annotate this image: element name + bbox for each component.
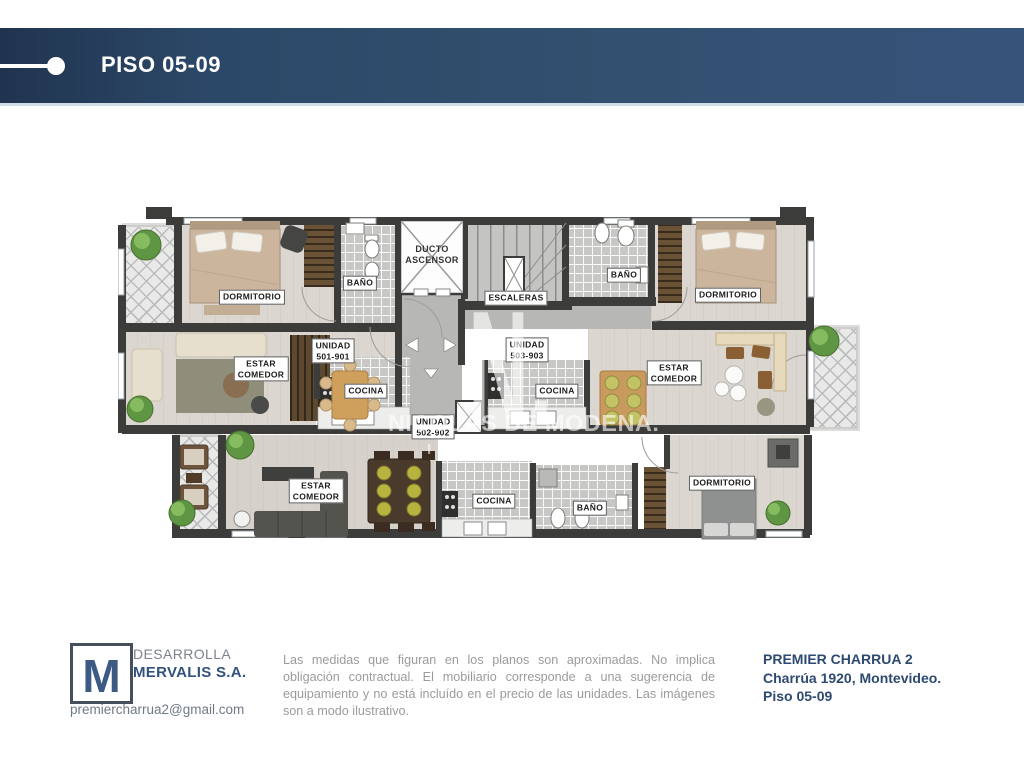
developer-logo-monogram: M — [82, 653, 120, 699]
unit-label-501: UNIDAD 501-901 — [312, 338, 355, 363]
room-label-cocina-501: COCINA — [344, 384, 387, 399]
header-bar: PISO 05-09 — [0, 28, 1024, 106]
room-label-cocina-503: COCINA — [535, 384, 578, 399]
project-info: PREMIER CHARRUA 2 Charrúa 1920, Montevid… — [763, 650, 941, 706]
room-floor-balcony-502 — [176, 435, 220, 535]
developer-logo: M — [70, 643, 133, 704]
developer-name: MERVALIS S.A. — [133, 664, 246, 681]
unit-label-502: UNIDAD 502-902 — [412, 414, 455, 439]
room-label-bano-503: BAÑO — [607, 268, 641, 283]
project-address: Charrúa 1920, Montevideo. — [763, 669, 941, 688]
project-name: PREMIER CHARRUA 2 — [763, 650, 941, 669]
legal-disclaimer: Las medidas que figuran en los planos so… — [283, 652, 715, 720]
room-floor-bano-501 — [336, 219, 398, 325]
room-floor-hall-503 — [464, 303, 652, 329]
room-label-dormitorio-502: DORMITORIO — [689, 476, 755, 491]
page-title: PISO 05-09 — [101, 52, 221, 78]
room-label-estar-502: ESTAR COMEDOR — [289, 478, 344, 503]
developer-label: DESARROLLA — [133, 646, 231, 662]
room-label-cocina-502: COCINA — [472, 494, 515, 509]
room-label-bano-501: BAÑO — [343, 276, 377, 291]
wardrobe-501 — [304, 221, 336, 287]
floor-plan: DORMITORIO BAÑO DUCTO ASCENSOR ESCALERAS… — [118, 205, 863, 547]
room-label-ducto-ascensor: DUCTO ASCENSOR — [402, 243, 461, 268]
room-label-estar-501: ESTAR COMEDOR — [234, 356, 289, 381]
header-accent-dot — [47, 57, 65, 75]
project-floor: Piso 05-09 — [763, 687, 941, 706]
header-accent-line — [0, 64, 50, 68]
room-label-dormitorio-503: DORMITORIO — [695, 288, 761, 303]
room-label-bano-502: BAÑO — [573, 501, 607, 516]
developer-email: premiercharrua2@gmail.com — [70, 702, 244, 717]
wardrobe-503 — [658, 223, 682, 303]
unit-label-503: UNIDAD 503-903 — [506, 337, 549, 362]
room-label-escaleras: ESCALERAS — [484, 291, 547, 306]
room-floor-balcony-right — [810, 327, 858, 429]
room-label-dormitorio-501: DORMITORIO — [219, 290, 285, 305]
wardrobe-502 — [644, 467, 666, 537]
room-floor-bano-503 — [565, 219, 651, 301]
room-label-estar-503: ESTAR COMEDOR — [647, 360, 702, 385]
